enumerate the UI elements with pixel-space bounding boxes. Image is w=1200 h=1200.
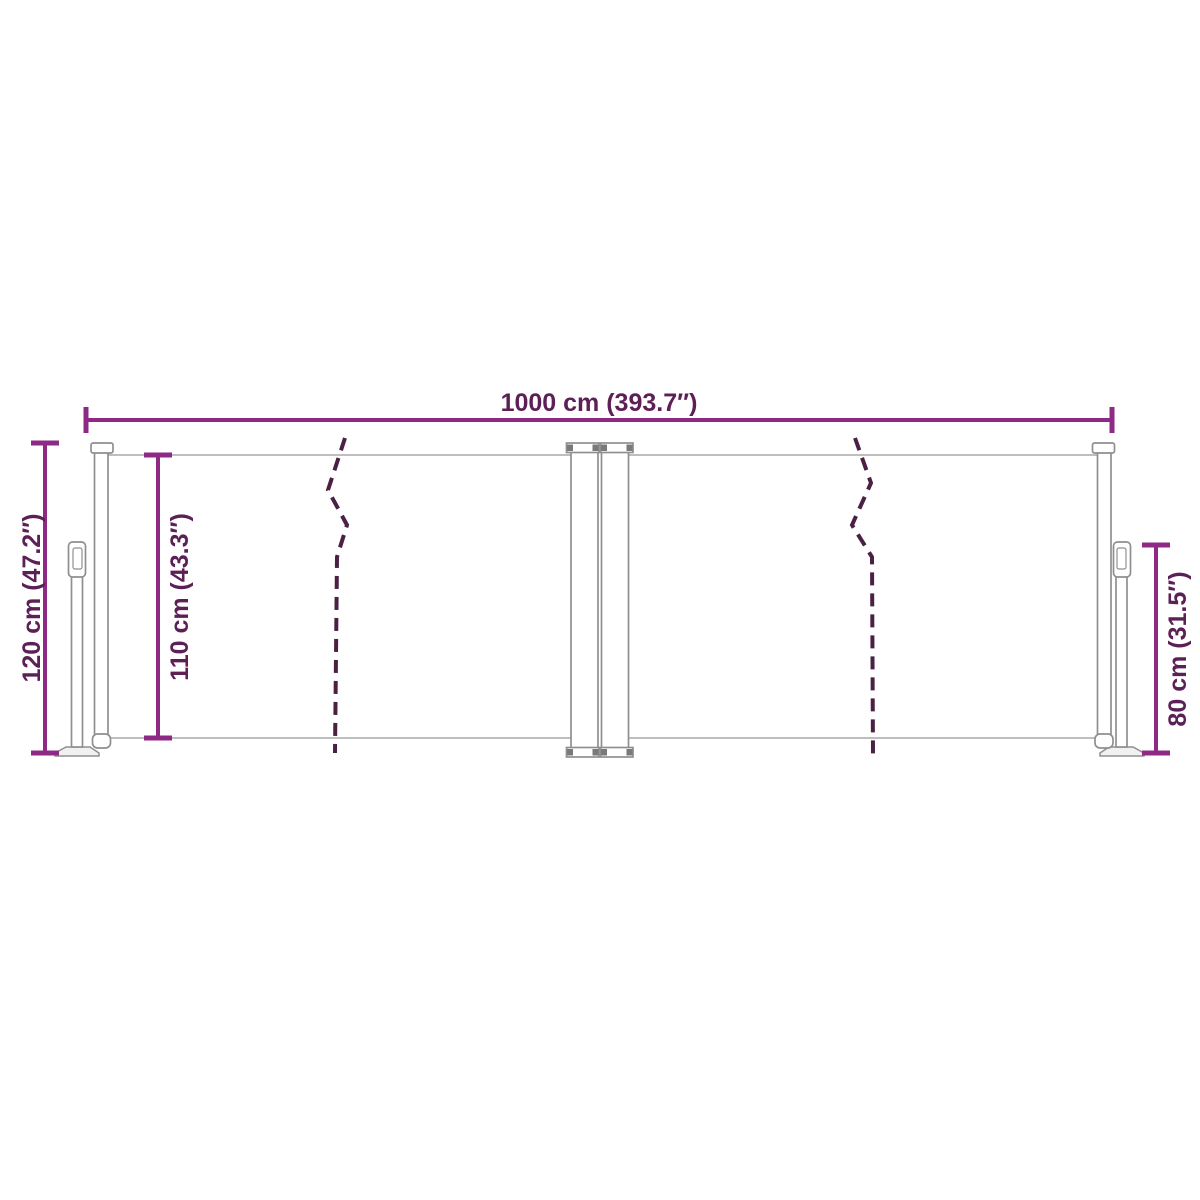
left-base-plate (55, 747, 99, 756)
left-support-leg (72, 575, 83, 747)
dimension-right-height-label: 80 cm (31.5″) (1164, 571, 1192, 726)
dimension-post-height: 120 cm (47.2″) (18, 443, 59, 753)
right-handle-grip (1117, 548, 1126, 569)
dimension-fabric-height: 110 cm (43.3″) (144, 455, 194, 738)
right-post-body (1098, 452, 1112, 736)
dimension-fabric-height-label: 110 cm (43.3″) (166, 513, 194, 681)
fabric-break-line-right (852, 438, 873, 756)
left-post-body (95, 452, 109, 736)
fabric-break-line-left (328, 438, 347, 753)
diagram-canvas: 1000 cm (393.7″) 120 cm (47.2″) 110 cm (… (0, 0, 1200, 1200)
cassette-body-left (571, 452, 598, 748)
right-post (1093, 443, 1145, 756)
cassette-body-right (602, 452, 629, 748)
dimension-total-width: 1000 cm (393.7″) (86, 389, 1112, 433)
right-post-foot (1095, 734, 1113, 748)
left-post-cap (91, 443, 113, 453)
left-post (55, 443, 113, 756)
dimension-total-width-label: 1000 cm (393.7″) (501, 389, 698, 417)
right-post-cap (1093, 443, 1115, 453)
right-support-leg (1116, 575, 1127, 747)
dimension-right-height: 80 cm (31.5″) (1142, 545, 1192, 753)
center-cassette (567, 443, 634, 757)
awning-dimension-diagram: 1000 cm (393.7″) 120 cm (47.2″) 110 cm (… (0, 0, 1200, 1200)
dimension-post-height-label: 120 cm (47.2″) (18, 513, 46, 682)
left-handle-grip (73, 548, 82, 569)
left-post-foot (93, 734, 111, 748)
